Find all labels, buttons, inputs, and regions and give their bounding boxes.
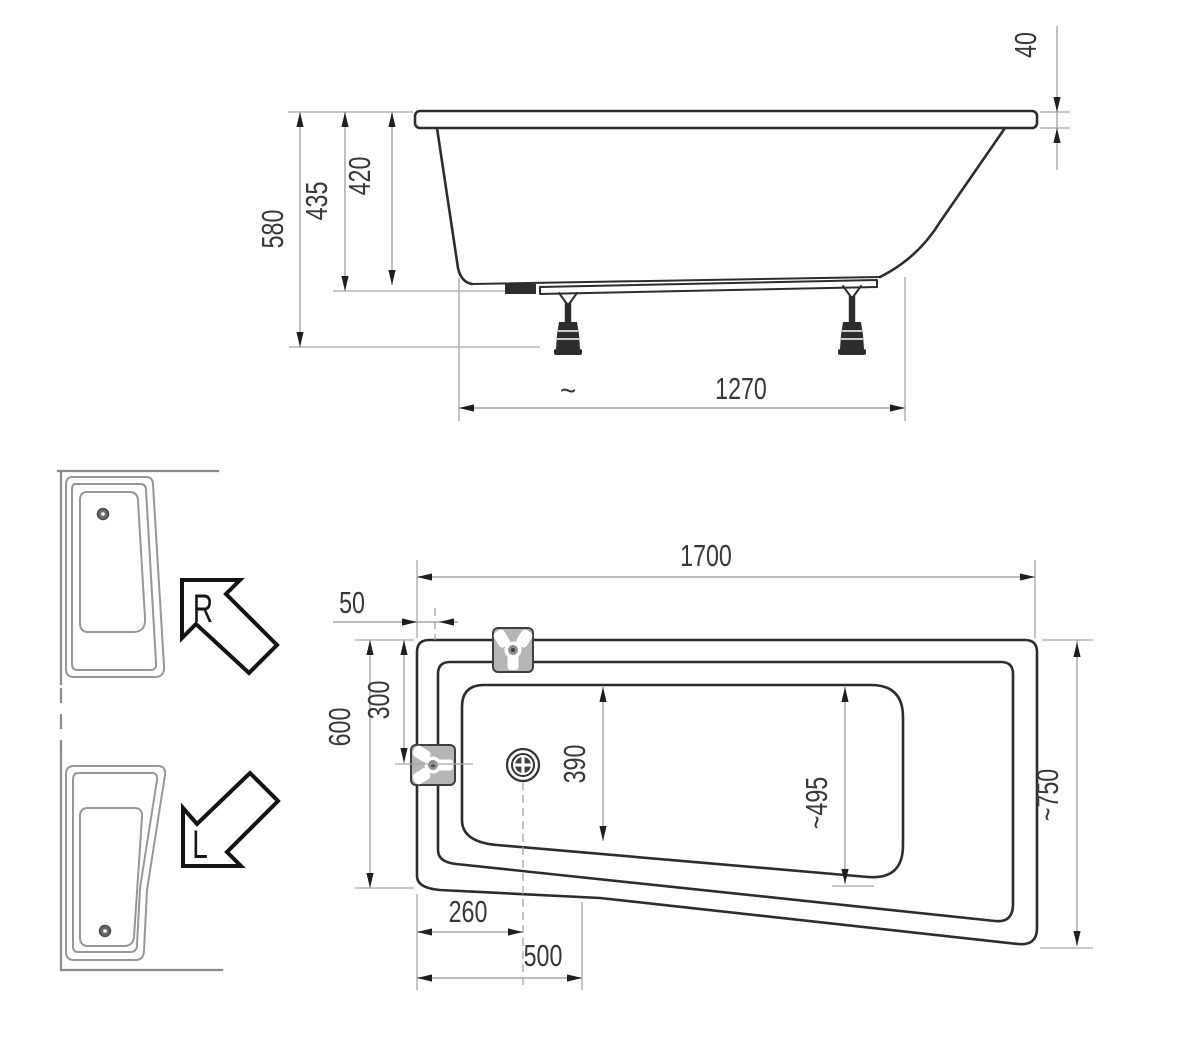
foot-stem xyxy=(565,303,571,323)
arrow-left-icon xyxy=(417,928,432,935)
foot-body xyxy=(556,322,580,349)
plan-inner-rim xyxy=(438,662,1013,921)
dim-right-width: ~750 xyxy=(1030,640,1093,948)
arrow-left-icon xyxy=(417,974,432,981)
variant-right-label: R xyxy=(193,587,213,631)
arrow-right-icon xyxy=(1020,573,1035,580)
arrow-up-icon xyxy=(341,112,348,127)
dim-inner-depth-label: 420 xyxy=(342,157,377,196)
variant-left-label: L xyxy=(192,823,208,867)
top-fitting-icon xyxy=(492,628,534,672)
arrow-down-icon xyxy=(388,270,395,285)
dim-rim-height: 40 xyxy=(1008,26,1070,170)
drain-icon xyxy=(507,749,539,781)
dim-shell-height-label: 435 xyxy=(299,182,334,221)
arrow-right-icon xyxy=(402,618,417,625)
arrow-up-icon xyxy=(1073,642,1080,657)
thumb-bowl xyxy=(80,492,145,632)
ext-lines xyxy=(1040,112,1070,128)
foot-stem xyxy=(849,296,855,323)
arrow-down-icon xyxy=(1073,931,1080,946)
arrow-down-icon xyxy=(296,332,303,347)
dim-fitting-offset: 300 xyxy=(361,640,408,763)
drawing-canvas: 580 435 420 40 xyxy=(0,0,1200,1047)
arrow-down-icon xyxy=(400,748,407,763)
thumb-drain-hole xyxy=(103,929,107,933)
left-fitting-icon xyxy=(411,744,455,786)
dim-length-label: 1700 xyxy=(680,538,732,573)
dim-bowl-width-right: ~495 xyxy=(799,687,874,886)
arrow-down-icon xyxy=(341,276,348,291)
variant-right: R xyxy=(58,471,277,752)
arrow-up-icon xyxy=(599,687,606,702)
foot-bracket-icon xyxy=(559,293,577,304)
arrow-left-icon xyxy=(459,404,474,411)
arrow-right-icon xyxy=(890,404,905,411)
dim-total-height: 580 xyxy=(255,112,304,347)
side-view: 580 435 420 40 xyxy=(255,26,1070,421)
arrow-down-icon xyxy=(366,873,373,888)
dim-shell-height: 435 xyxy=(299,112,349,291)
arrow-left-icon xyxy=(417,573,432,580)
dim-left-width-label: 600 xyxy=(322,708,357,747)
dim-total-height-label: 580 xyxy=(255,210,290,249)
dim-support-span-label: 1270 xyxy=(715,371,767,406)
foot-base xyxy=(554,349,582,355)
arrow-up-icon xyxy=(1053,128,1060,143)
side-rim-profile xyxy=(415,111,1037,128)
bathtub-technical-drawing: 580 435 420 40 xyxy=(0,0,1200,1047)
dim-rim-width: 50 xyxy=(333,585,458,626)
dim-right-width-label: ~750 xyxy=(1030,769,1065,821)
side-foot-right xyxy=(838,286,866,355)
dim-fitting-offset-label: 300 xyxy=(361,681,396,720)
side-right-wall xyxy=(880,128,1005,277)
dim-rim-width-label: 50 xyxy=(339,585,365,620)
plan-view: 1700 50 600 300 390 xyxy=(322,538,1093,990)
variant-left: L xyxy=(61,752,278,970)
arrow-up-icon xyxy=(296,112,303,127)
foot-base xyxy=(838,349,866,355)
dim-bowl-width-label: 390 xyxy=(557,745,592,784)
arrow-left-icon xyxy=(439,618,454,625)
arrow-up-icon xyxy=(366,640,373,655)
dim-support-span: ~ 1270 xyxy=(459,277,905,421)
arrow-down-icon xyxy=(599,826,606,841)
dim-bowl-width: 390 xyxy=(557,687,607,841)
arrow-up-icon xyxy=(400,640,407,655)
approx-tilde: ~ xyxy=(560,374,576,409)
foot-body xyxy=(840,322,864,349)
side-foot-left xyxy=(554,293,582,355)
thumb-bowl xyxy=(80,808,142,946)
side-drain-outlet xyxy=(505,284,536,294)
arrow-up-icon xyxy=(388,112,395,127)
arrow-right-icon xyxy=(508,928,523,935)
thumb-drain-hole xyxy=(101,512,105,516)
dim-taper-offset-label: 500 xyxy=(524,938,563,973)
dim-rim-height-label: 40 xyxy=(1008,32,1043,58)
dim-length: 1700 xyxy=(417,538,1035,638)
arrow-right-icon xyxy=(567,974,582,981)
dim-taper-offset: 500 xyxy=(417,902,582,990)
orientation-legend: R L xyxy=(58,471,278,970)
dim-drain-offset-label: 260 xyxy=(449,894,488,929)
dim-inner-depth: 420 xyxy=(342,112,396,285)
dim-bowl-width-right-label: ~495 xyxy=(799,777,834,829)
arrow-down-icon xyxy=(1053,97,1060,112)
side-left-wall xyxy=(437,128,472,284)
arrow-up-icon xyxy=(841,687,848,702)
dim-drain-offset: 260 xyxy=(417,894,523,990)
